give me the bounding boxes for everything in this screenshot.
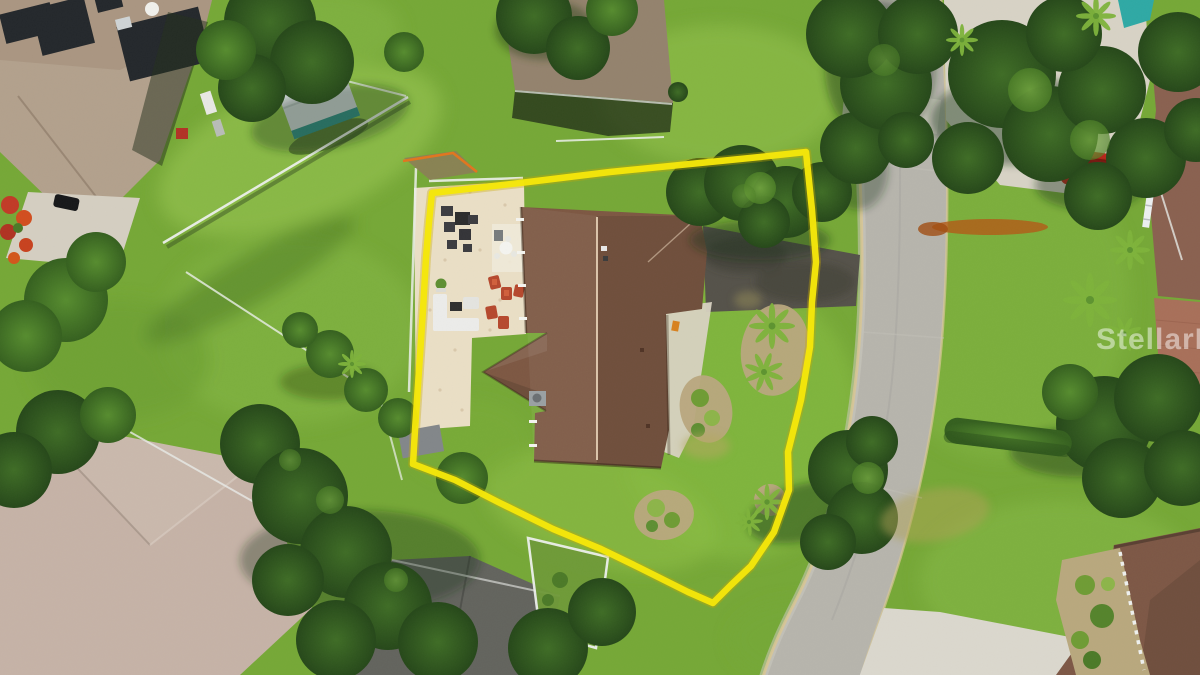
aerial-photo-canvas: StellarMLS <box>0 0 1200 675</box>
stellar-mls-watermark: StellarMLS <box>1096 323 1200 356</box>
photo-grain <box>0 0 1200 675</box>
aerial-photo: StellarMLS <box>0 0 1200 675</box>
